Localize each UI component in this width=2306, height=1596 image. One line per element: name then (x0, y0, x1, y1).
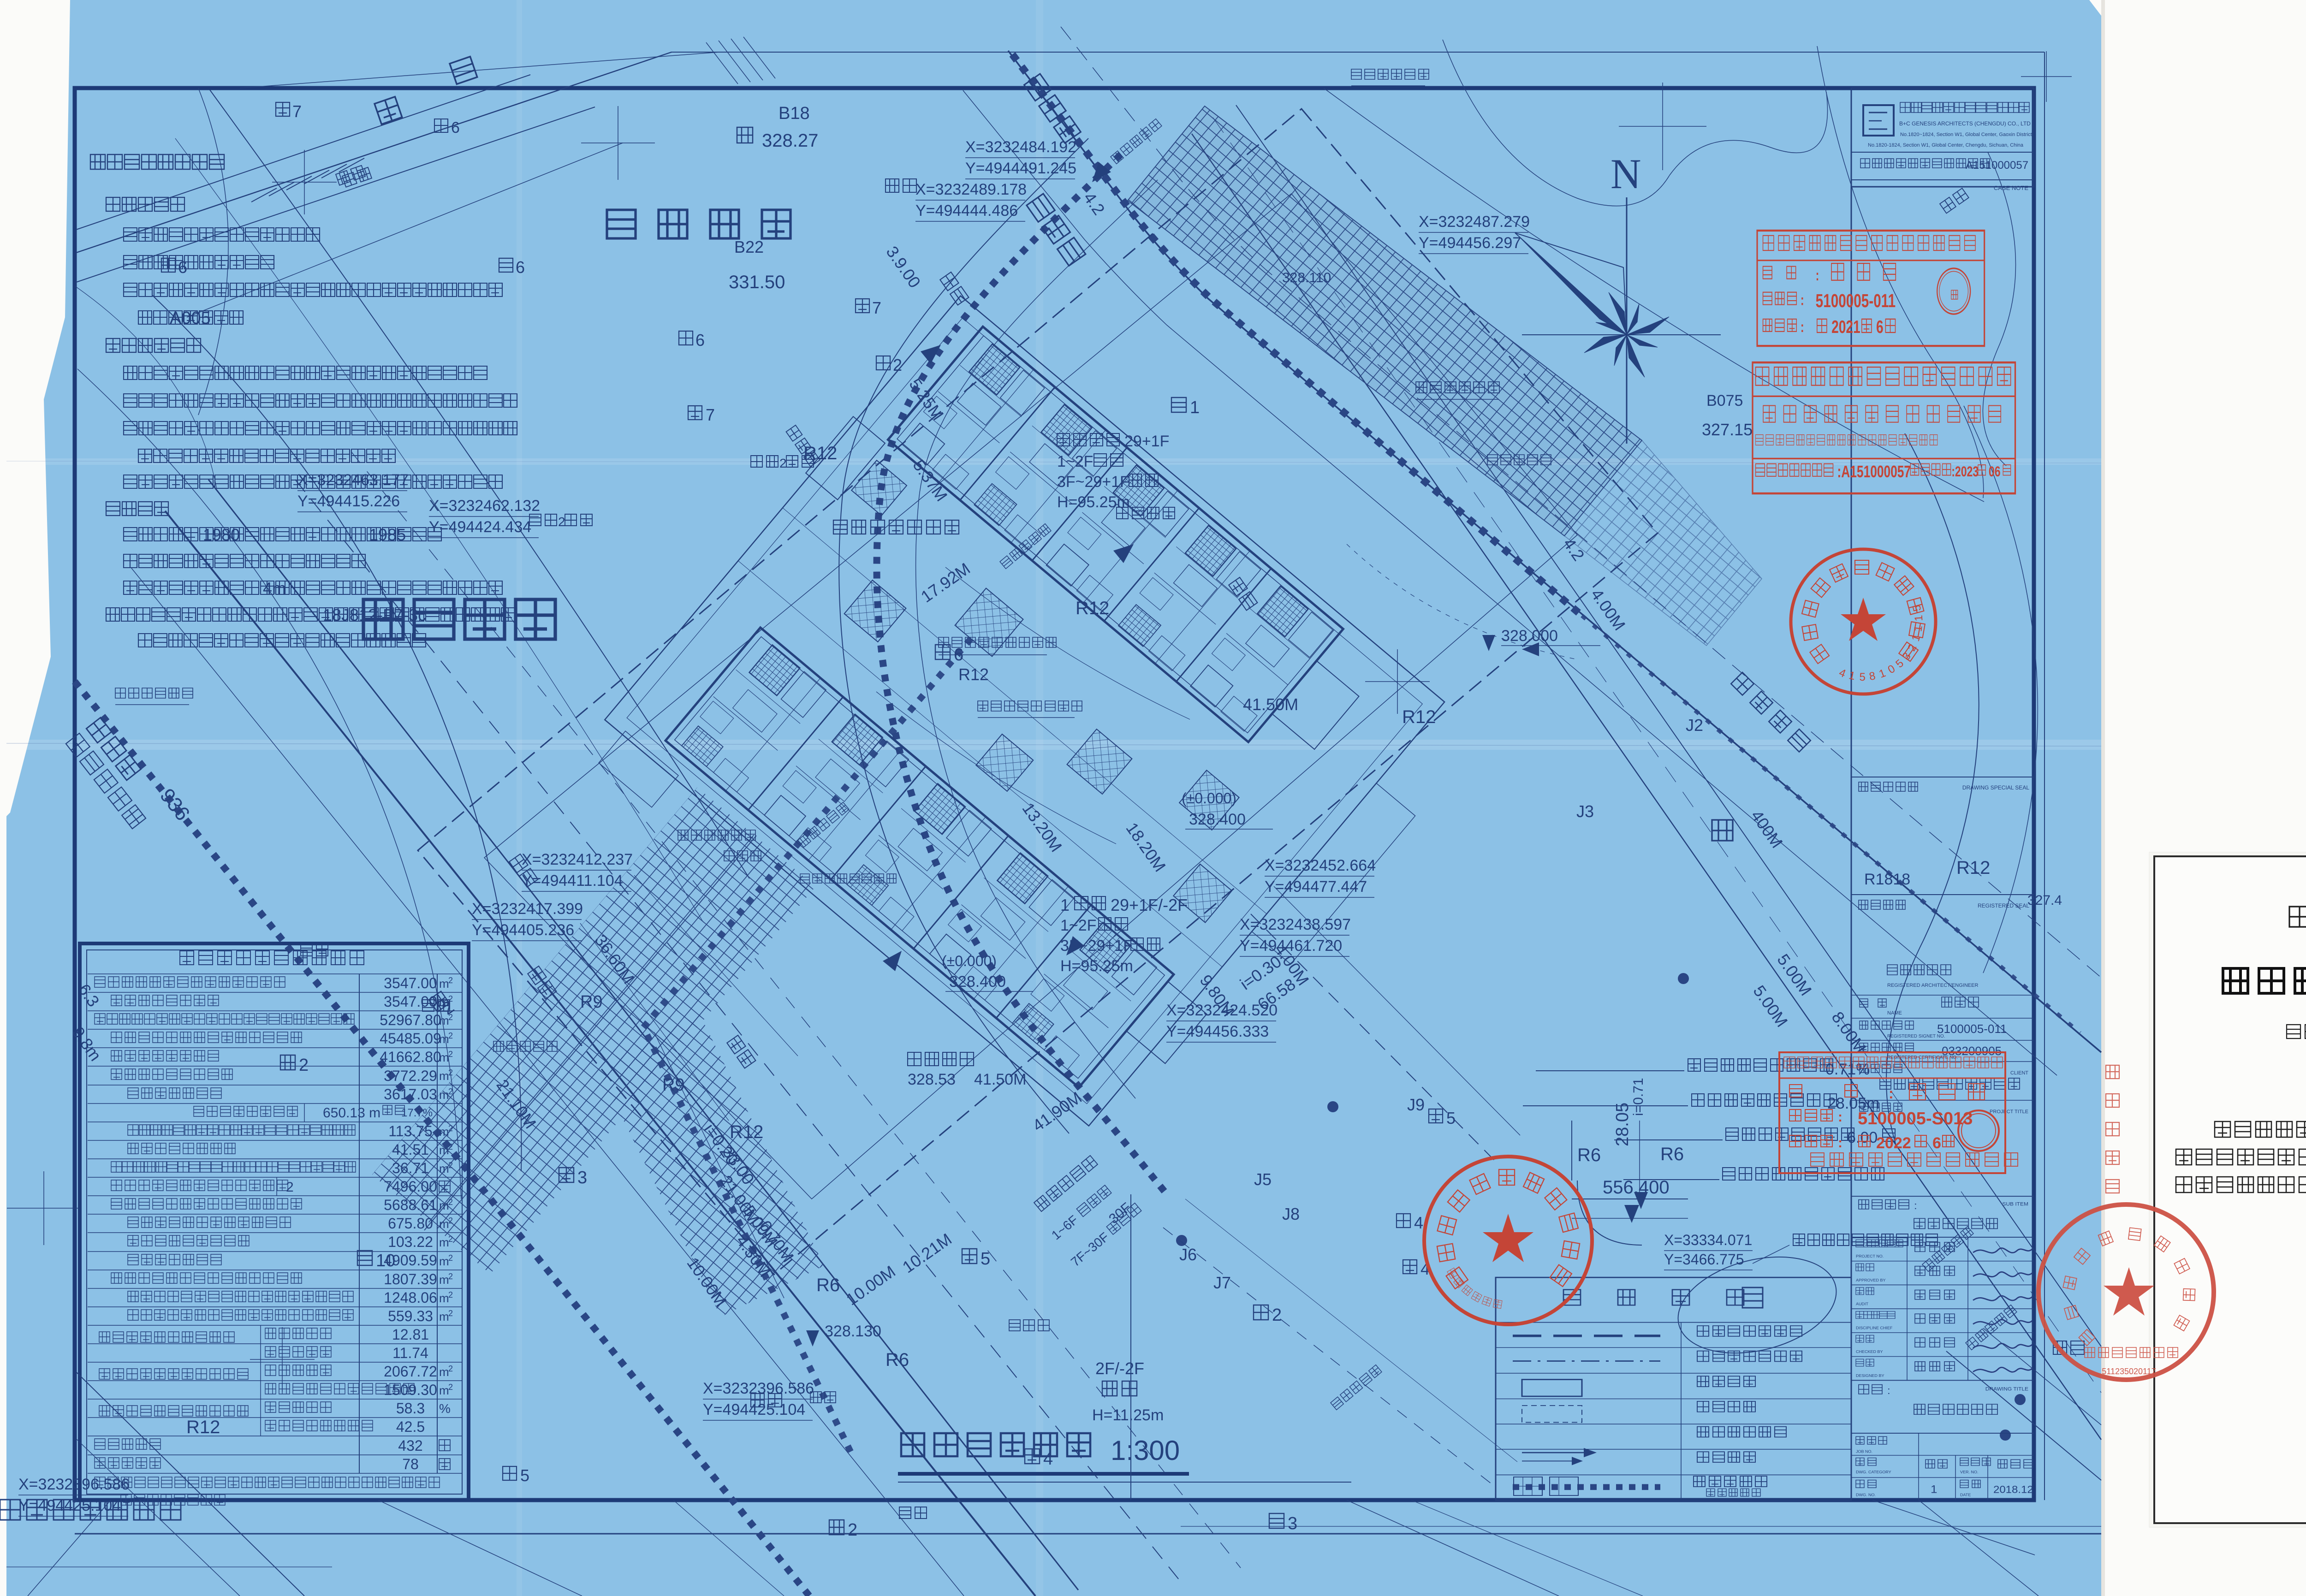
svg-text:3617.03: 3617.03 (384, 1086, 437, 1103)
svg-text:6: 6 (451, 119, 460, 136)
svg-text:A005: A005 (170, 309, 211, 328)
svg-text:1985: 1985 (369, 525, 406, 544)
svg-text:m: m (439, 1273, 449, 1287)
svg-text:3: 3 (577, 1168, 587, 1187)
svg-text:1807.39: 1807.39 (384, 1271, 437, 1287)
svg-text:J5: J5 (1254, 1170, 1272, 1189)
svg-text:7: 7 (292, 102, 302, 121)
svg-text:103.22: 103.22 (388, 1234, 433, 1250)
svg-text:42.5: 42.5 (396, 1418, 425, 1435)
svg-text:Y=494444.486: Y=494444.486 (915, 202, 1018, 220)
svg-text:28.05: 28.05 (1613, 1103, 1632, 1146)
svg-text:2: 2 (448, 1198, 453, 1207)
svg-text:R12: R12 (803, 443, 837, 463)
svg-text:11.74: 11.74 (392, 1345, 428, 1361)
svg-text:J3: J3 (1576, 802, 1594, 821)
svg-text:DWG. NO.: DWG. NO. (1856, 1493, 1876, 1497)
svg-text:(±0.000): (±0.000) (942, 953, 997, 969)
svg-text:2: 2 (448, 1234, 453, 1244)
svg-text:41662.80: 41662.80 (380, 1049, 441, 1065)
svg-text:2: 2 (848, 1520, 857, 1540)
svg-text:3547.00: 3547.00 (384, 975, 437, 991)
svg-text:Y=494411.104: Y=494411.104 (522, 872, 623, 890)
svg-text:12.81: 12.81 (392, 1326, 429, 1343)
svg-text:2: 2 (448, 1272, 453, 1281)
svg-text:J6: J6 (1179, 1245, 1197, 1264)
svg-text:7: 7 (872, 298, 881, 317)
svg-text:Y=494456.333: Y=494456.333 (1166, 1023, 1269, 1040)
svg-text:m: m (439, 995, 449, 1009)
svg-text:Y=494405.236: Y=494405.236 (472, 921, 574, 939)
svg-text:328.27: 328.27 (762, 131, 818, 151)
svg-text:m: m (439, 1032, 449, 1046)
svg-text:m: m (439, 1254, 449, 1268)
svg-text:5: 5 (520, 1466, 529, 1485)
svg-text:1:300: 1:300 (1111, 1435, 1180, 1466)
svg-text:1: 1 (1060, 896, 1070, 914)
svg-text:CHECKED BY: CHECKED BY (1856, 1350, 1883, 1354)
svg-text:5100005-011: 5100005-011 (1816, 290, 1896, 311)
svg-text:R12: R12 (730, 1122, 763, 1142)
svg-text:m: m (439, 1235, 449, 1249)
svg-text:2F/-2F: 2F/-2F (1095, 1359, 1144, 1378)
svg-text:m: m (439, 1125, 449, 1139)
svg-text:REGISTERED SEAL: REGISTERED SEAL (1978, 902, 2029, 909)
svg-text:R1818: R1818 (1864, 871, 1910, 888)
svg-text:DESIGNED BY: DESIGNED BY (1856, 1373, 1884, 1378)
svg-text:5688.61: 5688.61 (384, 1197, 437, 1213)
svg-text:J9: J9 (1407, 1095, 1425, 1114)
svg-text:3547.00: 3547.00 (384, 993, 437, 1010)
svg-text:m: m (439, 1014, 449, 1027)
svg-text:4909.59: 4909.59 (384, 1252, 437, 1269)
svg-text:2: 2 (299, 1056, 309, 1075)
svg-text:Y=494424.434: Y=494424.434 (429, 518, 531, 536)
svg-text:i=0.71: i=0.71 (1631, 1078, 1646, 1116)
svg-text:NAME: NAME (1887, 1010, 1902, 1016)
svg-text:R12: R12 (958, 665, 989, 684)
svg-text:m: m (439, 1198, 449, 1212)
svg-text:3: 3 (1288, 1514, 1297, 1533)
svg-text:m: m (439, 1291, 449, 1305)
svg-text:113.75: 113.75 (388, 1123, 433, 1139)
svg-text::: : (1889, 1085, 1894, 1102)
svg-text:2: 2 (448, 1253, 453, 1263)
svg-text:033200905: 033200905 (1942, 1044, 2002, 1058)
svg-text:6: 6 (178, 258, 187, 277)
svg-text:1: 1 (1190, 398, 1200, 417)
svg-text:2: 2 (448, 1142, 453, 1151)
svg-text:2018.12: 2018.12 (1993, 1483, 2033, 1495)
svg-text:328.110: 328.110 (1282, 270, 1331, 285)
svg-text:m: m (439, 1050, 449, 1064)
svg-text:559.33: 559.33 (388, 1308, 433, 1324)
svg-text:0.71%: 0.71% (1825, 1061, 1870, 1078)
svg-text:675.80: 675.80 (388, 1215, 433, 1232)
svg-text::: : (1838, 1109, 1842, 1125)
svg-text:VER. NO.: VER. NO. (1960, 1470, 1978, 1474)
svg-text:APPROVED BY: APPROVED BY (1856, 1278, 1886, 1282)
svg-text:B075: B075 (1706, 392, 1743, 409)
svg-text:6: 6 (695, 331, 705, 350)
svg-text:2067.72: 2067.72 (384, 1363, 437, 1380)
svg-text:DISCIPLINE CHIEF: DISCIPLINE CHIEF (1856, 1326, 1892, 1330)
svg-text:R12: R12 (1956, 858, 1990, 878)
svg-text:Y=494415.226: Y=494415.226 (297, 492, 400, 510)
svg-text:X=3232396.586: X=3232396.586 (18, 1476, 130, 1493)
svg-text:78: 78 (402, 1456, 419, 1472)
svg-text:2: 2 (448, 994, 453, 1003)
svg-text:7496.00: 7496.00 (384, 1178, 437, 1195)
svg-text:Y=494425.104: Y=494425.104 (703, 1401, 805, 1418)
svg-text:CASE NOTE: CASE NOTE (1994, 184, 2028, 191)
svg-text:Y=494456.297: Y=494456.297 (1419, 234, 1521, 252)
svg-text:328.400: 328.400 (1189, 811, 1246, 828)
svg-text:29+1F/-2F: 29+1F/-2F (1111, 896, 1188, 914)
svg-text:DATE: DATE (1960, 1493, 1971, 1497)
svg-text::A151000057: :A151000057 (1837, 462, 1911, 481)
svg-text:2: 2 (448, 1050, 453, 1059)
svg-text:m: m (439, 1365, 449, 1379)
svg-text:B22: B22 (734, 237, 764, 256)
svg-text:328.53: 328.53 (908, 1071, 956, 1088)
svg-text:DRAWING SPECIAL SEAL: DRAWING SPECIAL SEAL (1962, 784, 2029, 791)
svg-text:A151000057: A151000057 (1966, 159, 2028, 172)
svg-text:No.1820-1824, Section W1, Glob: No.1820-1824, Section W1, Global Center,… (1868, 142, 2024, 148)
svg-text:328.400: 328.400 (949, 973, 1006, 991)
svg-text:N: N (1611, 150, 1641, 197)
svg-text:2: 2 (1272, 1305, 1282, 1325)
svg-text:m: m (439, 1217, 449, 1231)
svg-text:3F~29+1F: 3F~29+1F (1057, 473, 1129, 491)
svg-text:REGISTERED ARCHITECT/ENGINEER: REGISTERED ARCHITECT/ENGINEER (1887, 983, 1978, 988)
svg-text:328.000: 328.000 (1501, 627, 1558, 645)
svg-text:29+1F: 29+1F (1124, 433, 1169, 450)
svg-text:5: 5 (1859, 671, 1866, 683)
svg-text:X=3232452.664: X=3232452.664 (1265, 857, 1376, 874)
svg-text:2: 2 (448, 1364, 453, 1373)
svg-text:52967.80: 52967.80 (380, 1012, 441, 1028)
svg-text:432: 432 (398, 1437, 422, 1454)
svg-text:R9: R9 (662, 1075, 685, 1095)
svg-text:Y=4944491.245: Y=4944491.245 (965, 160, 1076, 177)
svg-text:331.50: 331.50 (729, 272, 785, 292)
svg-text:1509.30: 1509.30 (384, 1382, 437, 1398)
svg-text:1980: 1980 (203, 525, 240, 544)
svg-text:Y=494477.447: Y=494477.447 (1265, 878, 1367, 896)
svg-text:650.13 m: 650.13 m (323, 1105, 380, 1121)
svg-text:327.15: 327.15 (1702, 420, 1753, 439)
svg-text::: : (1887, 1385, 1890, 1396)
svg-text:X=3232412.237: X=3232412.237 (522, 851, 633, 868)
svg-text:m: m (439, 1162, 449, 1175)
svg-text:B+C GENESIS ARCHITECTS (CHENGD: B+C GENESIS ARCHITECTS (CHENGDU) CO., LT… (1899, 120, 2031, 127)
svg-text:m: m (439, 1143, 449, 1157)
svg-text:41.50M: 41.50M (1243, 695, 1298, 714)
svg-text:2: 2 (448, 1013, 453, 1022)
svg-text:2: 2 (448, 1216, 453, 1225)
svg-text:3F~29+1F: 3F~29+1F (1060, 937, 1133, 955)
svg-text:R9: R9 (580, 992, 603, 1012)
svg-text::: : (1801, 291, 1804, 309)
svg-text:2: 2 (448, 976, 453, 985)
svg-text:1: 1 (1931, 1483, 1937, 1495)
svg-text:No.1820~1824, Section W1, Glob: No.1820~1824, Section W1, Global Center,… (1900, 132, 2032, 137)
svg-text:R6: R6 (886, 1350, 909, 1370)
svg-text:2: 2 (448, 1161, 453, 1170)
svg-text:41.51: 41.51 (392, 1141, 429, 1158)
svg-text:J8: J8 (1282, 1204, 1300, 1223)
svg-text:2: 2 (558, 515, 565, 529)
svg-text:AUDIT: AUDIT (1856, 1302, 1869, 1306)
svg-text:5100005-S013: 5100005-S013 (1858, 1109, 1973, 1128)
svg-text:7: 7 (706, 405, 715, 424)
svg-text:4: 4 (1043, 1449, 1053, 1469)
svg-text:6: 6 (516, 258, 525, 277)
svg-text:B18: B18 (779, 104, 810, 123)
svg-text:R6: R6 (1577, 1145, 1601, 1165)
svg-text:2: 2 (893, 356, 902, 374)
svg-text:2: 2 (448, 1309, 453, 1318)
svg-text:1248.06: 1248.06 (384, 1289, 437, 1306)
svg-text:45485.09: 45485.09 (380, 1030, 441, 1047)
svg-text:REGISTERED SIGNET NO.: REGISTERED SIGNET NO. (1887, 1034, 1945, 1039)
svg-text:JOB NO.: JOB NO. (1856, 1449, 1872, 1454)
svg-text:%: % (439, 1401, 451, 1416)
svg-text:X=3232489.178: X=3232489.178 (915, 181, 1027, 198)
svg-text:R6: R6 (1660, 1144, 1684, 1164)
svg-text:X=3232417.399: X=3232417.399 (472, 900, 583, 918)
svg-text::: : (1816, 267, 1819, 284)
svg-text:6: 6 (1932, 1134, 1941, 1152)
svg-text:2: 2 (448, 1124, 453, 1133)
svg-text:5100005-011: 5100005-011 (1937, 1022, 2007, 1036)
svg-text:X=3232396.586: X=3232396.586 (703, 1380, 814, 1397)
svg-text:328.130: 328.130 (825, 1323, 881, 1340)
svg-text:R12: R12 (1076, 598, 1109, 618)
svg-text:2: 2 (286, 1180, 294, 1195)
svg-text:m: m (439, 977, 449, 991)
svg-text:6: 6 (954, 645, 963, 665)
svg-text:m: m (439, 1069, 449, 1083)
svg-text:J2: J2 (1686, 716, 1703, 735)
svg-text:X=3232462.132: X=3232462.132 (429, 497, 540, 515)
svg-text:H=95.25m: H=95.25m (1057, 493, 1130, 511)
svg-text:H=95.25m: H=95.25m (1060, 957, 1133, 975)
svg-text:17.7%: 17.7% (401, 1107, 433, 1119)
svg-text:4: 4 (1414, 1213, 1423, 1232)
svg-text:5: 5 (1446, 1109, 1456, 1127)
svg-text:m: m (439, 1383, 449, 1397)
svg-text:R6: R6 (816, 1275, 840, 1295)
svg-text:J7: J7 (1213, 1273, 1231, 1292)
svg-text:PROJECT TITLE: PROJECT TITLE (1990, 1109, 2028, 1115)
svg-text::: : (1801, 318, 1804, 335)
svg-text:5: 5 (981, 1249, 990, 1269)
svg-text:(±0.000): (±0.000) (1182, 790, 1236, 807)
svg-text:1~2F: 1~2F (1057, 453, 1093, 470)
svg-text::2023: :2023 (1951, 463, 1979, 479)
svg-text:DWG. CATEGORY: DWG. CATEGORY (1856, 1470, 1891, 1474)
svg-text:m: m (439, 1088, 449, 1102)
svg-text:2: 2 (448, 1031, 453, 1040)
svg-text:6: 6 (1876, 317, 1884, 337)
svg-text:H=11.25m: H=11.25m (1092, 1406, 1164, 1424)
svg-text:2: 2 (779, 456, 787, 470)
svg-text:2: 2 (448, 1290, 453, 1299)
svg-text:2: 2 (448, 1068, 453, 1077)
svg-text:X=3232487.279: X=3232487.279 (1419, 213, 1530, 231)
svg-text:06: 06 (1989, 463, 2001, 479)
svg-text:2: 2 (448, 1382, 453, 1392)
svg-text:CLIENT: CLIENT (2010, 1070, 2028, 1076)
svg-text:R12: R12 (1402, 707, 1436, 727)
svg-text::: : (1914, 1200, 1917, 1211)
svg-text:m: m (439, 1310, 449, 1323)
svg-text:R12: R12 (186, 1417, 220, 1437)
svg-text::: : (1838, 1135, 1842, 1151)
svg-text:3772.29: 3772.29 (384, 1068, 437, 1084)
svg-text:PROJECT NO.: PROJECT NO. (1856, 1254, 1884, 1259)
svg-text:4m: 4m (263, 579, 286, 598)
svg-text:2022: 2022 (1876, 1134, 1911, 1152)
svg-text:1: 1 (1913, 615, 1926, 622)
svg-text:2021: 2021 (1831, 317, 1860, 337)
svg-text:41.50M: 41.50M (974, 1071, 1026, 1088)
svg-text:X=3232484.192: X=3232484.192 (965, 138, 1076, 156)
svg-text:58.3: 58.3 (396, 1400, 425, 1417)
svg-text:511235020117: 511235020117 (2102, 1367, 2156, 1376)
svg-text:1~2F: 1~2F (1060, 917, 1096, 934)
svg-text:2: 2 (448, 1087, 453, 1096)
svg-text:SUB ITEM: SUB ITEM (2002, 1202, 2028, 1207)
svg-text:36.71: 36.71 (392, 1160, 429, 1176)
svg-text:X=3232438.597: X=3232438.597 (1240, 916, 1351, 933)
svg-text:X=3232463.177: X=3232463.177 (297, 471, 409, 489)
svg-text:X=33334.071: X=33334.071 (1664, 1232, 1752, 1248)
svg-text:556.400: 556.400 (1603, 1177, 1670, 1198)
